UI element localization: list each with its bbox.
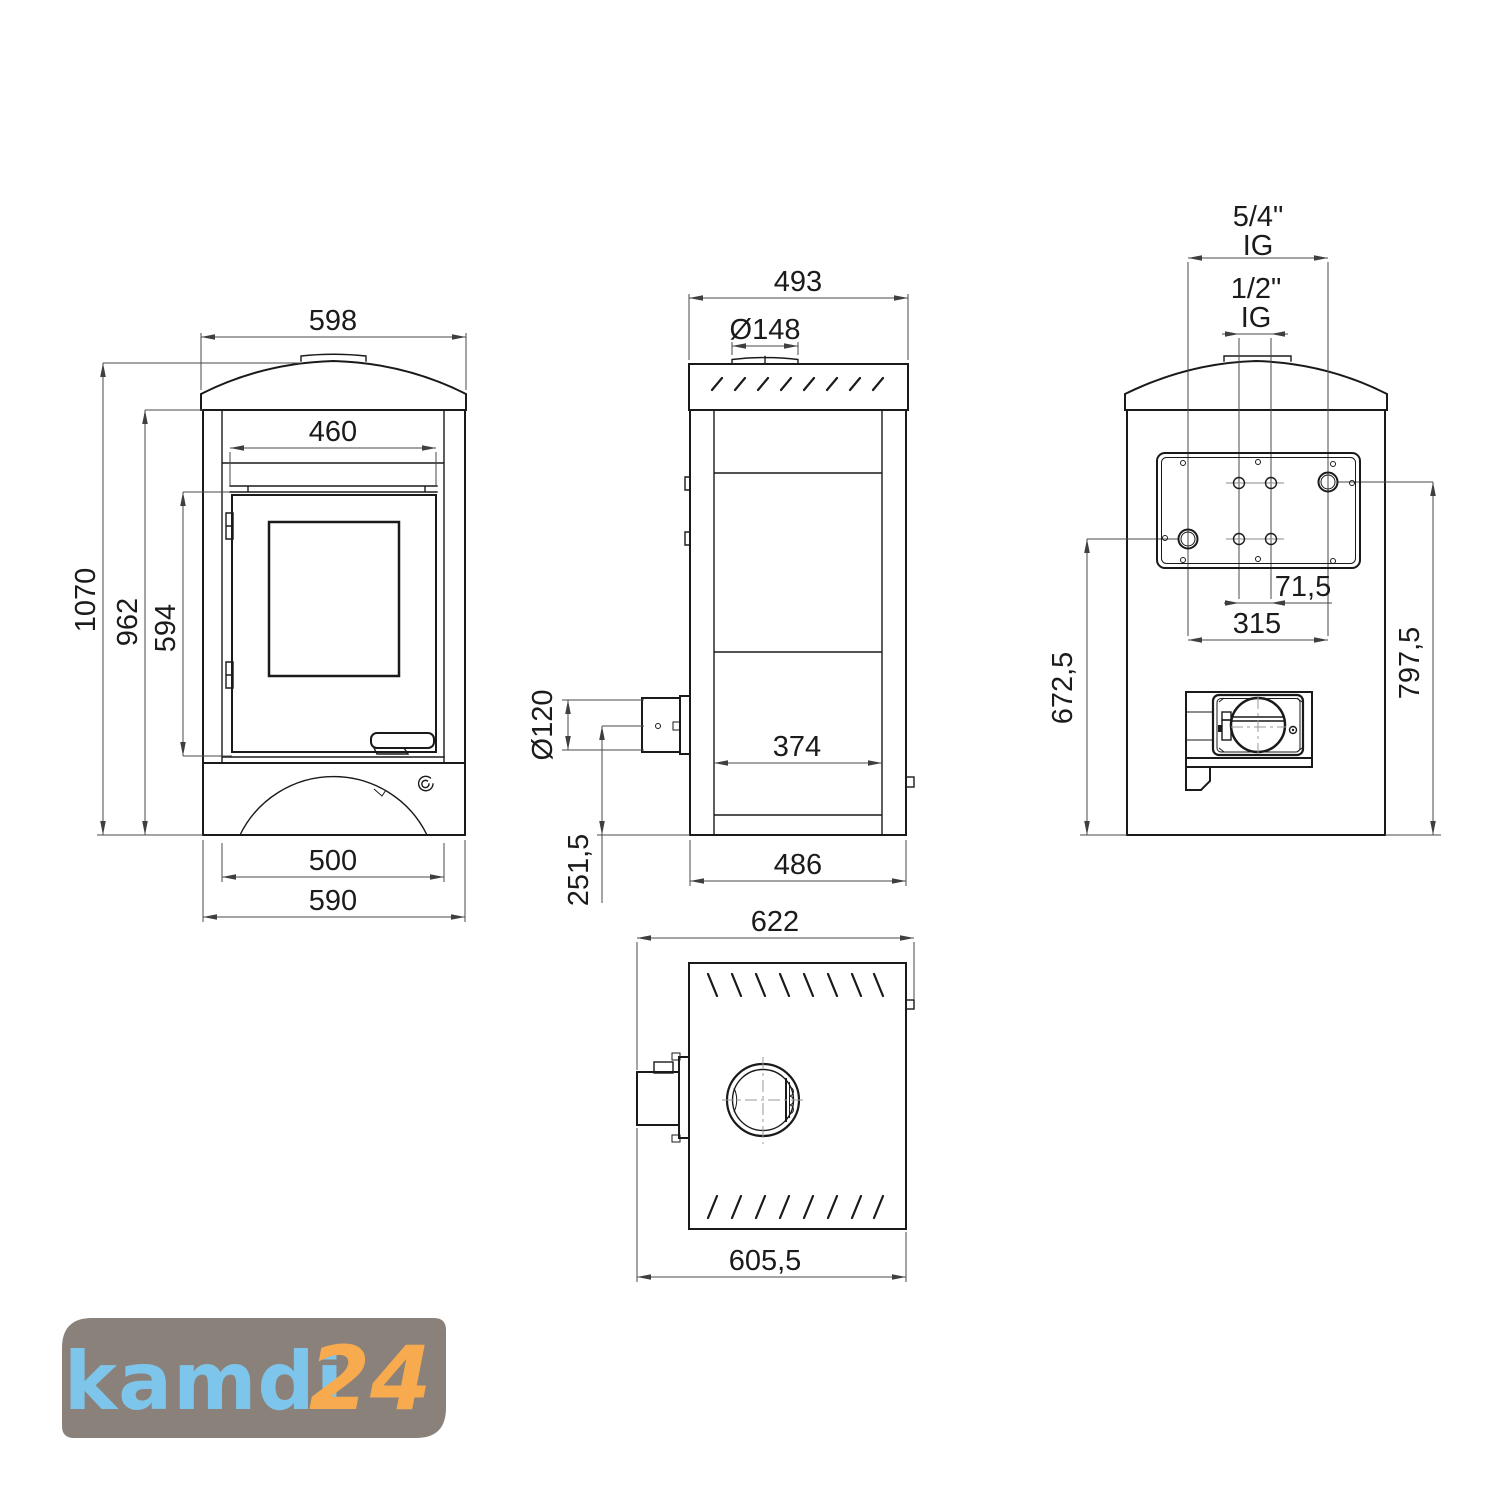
dim-back-large-socket-thread: IG xyxy=(1243,230,1274,262)
logo-brand-text: kamdi xyxy=(64,1335,344,1428)
side-flue-collar xyxy=(732,357,798,365)
technical-drawing-canvas: 598 1070 962 594 460 500 590 xyxy=(0,0,1500,1500)
side-body-outline xyxy=(690,410,906,835)
dim-front-total-height: 1070 xyxy=(70,568,102,633)
dim-back-large-socket-size: 5/4" xyxy=(1233,201,1284,233)
dim-back-large-socket-spacing: 315 xyxy=(1233,608,1281,640)
front-top-strip xyxy=(230,486,437,492)
back-view: 5/4" IG 1/2" IG 71,5 315 672,5 797,5 xyxy=(1047,201,1441,835)
dim-back-small-socket-spacing: 71,5 xyxy=(1275,571,1331,603)
front-door-glass xyxy=(269,522,399,676)
front-body-outline xyxy=(203,410,465,835)
dim-back-small-socket-size: 1/2" xyxy=(1231,273,1282,305)
drawing-page: 598 1070 962 594 460 500 590 xyxy=(0,0,1500,1500)
front-top-cap xyxy=(201,361,466,410)
side-view: 493 Ø148 374 Ø120 251,5 486 xyxy=(527,266,914,906)
dim-top-total-depth: 622 xyxy=(751,906,799,938)
dim-top-body-depth: 605,5 xyxy=(729,1245,802,1277)
dim-front-base-inner-width: 500 xyxy=(309,845,357,877)
back-large-sockets xyxy=(1179,473,1338,549)
top-smoke-pipe xyxy=(637,1072,679,1125)
top-body-outline xyxy=(689,963,906,1229)
back-small-sockets xyxy=(1234,478,1277,545)
dim-side-base-depth: 486 xyxy=(774,849,822,881)
brand-logo: kamdi 24 xyxy=(62,1318,446,1438)
back-door-latch xyxy=(1222,712,1231,720)
top-view: 622 605,5 xyxy=(637,906,914,1282)
dim-back-left-socket-height: 672,5 xyxy=(1047,652,1079,725)
front-door xyxy=(232,495,436,752)
top-pipe-flange xyxy=(679,1057,689,1138)
back-connection-panel xyxy=(1157,453,1360,568)
dim-front-base-width: 590 xyxy=(309,885,357,917)
front-base-arch xyxy=(240,777,427,835)
dim-front-body-height: 962 xyxy=(112,598,144,646)
side-rear-tab xyxy=(906,777,914,787)
dim-front-door-width: 460 xyxy=(309,416,357,448)
top-rear-vents xyxy=(708,1196,883,1218)
top-front-vents xyxy=(708,974,883,996)
dim-front-door-height: 594 xyxy=(150,604,182,652)
side-pipe-flange xyxy=(680,696,690,754)
front-door-handle xyxy=(371,733,434,748)
back-cleanout-assembly xyxy=(1186,692,1312,790)
dim-side-pipe-height: 251,5 xyxy=(563,834,595,907)
side-smoke-pipe xyxy=(642,698,680,752)
front-side-panels xyxy=(222,410,444,763)
logo-suffix-text: 24 xyxy=(309,1327,431,1430)
side-cap-vents xyxy=(712,378,883,390)
front-cap-stub xyxy=(301,354,366,361)
back-top-cap xyxy=(1125,361,1387,410)
dim-back-small-socket-thread: IG xyxy=(1241,302,1272,334)
dim-side-flue-collar: Ø148 xyxy=(730,314,801,346)
side-inner-walls xyxy=(714,410,882,835)
top-side-tab xyxy=(906,1000,914,1009)
front-view: 598 1070 962 594 460 500 590 xyxy=(70,305,466,922)
dim-side-pipe-diameter: Ø120 xyxy=(527,690,559,761)
dim-side-top-depth: 493 xyxy=(774,266,822,298)
side-pipe-hole xyxy=(656,724,661,729)
top-collar-left-detail xyxy=(734,1088,737,1112)
dim-back-right-socket-height: 797,5 xyxy=(1394,627,1426,700)
side-pipe-bolt xyxy=(673,722,680,730)
dim-side-firebox-depth: 374 xyxy=(773,731,821,763)
front-air-knob-icon xyxy=(419,776,433,790)
dim-front-cap-width: 598 xyxy=(309,305,357,337)
